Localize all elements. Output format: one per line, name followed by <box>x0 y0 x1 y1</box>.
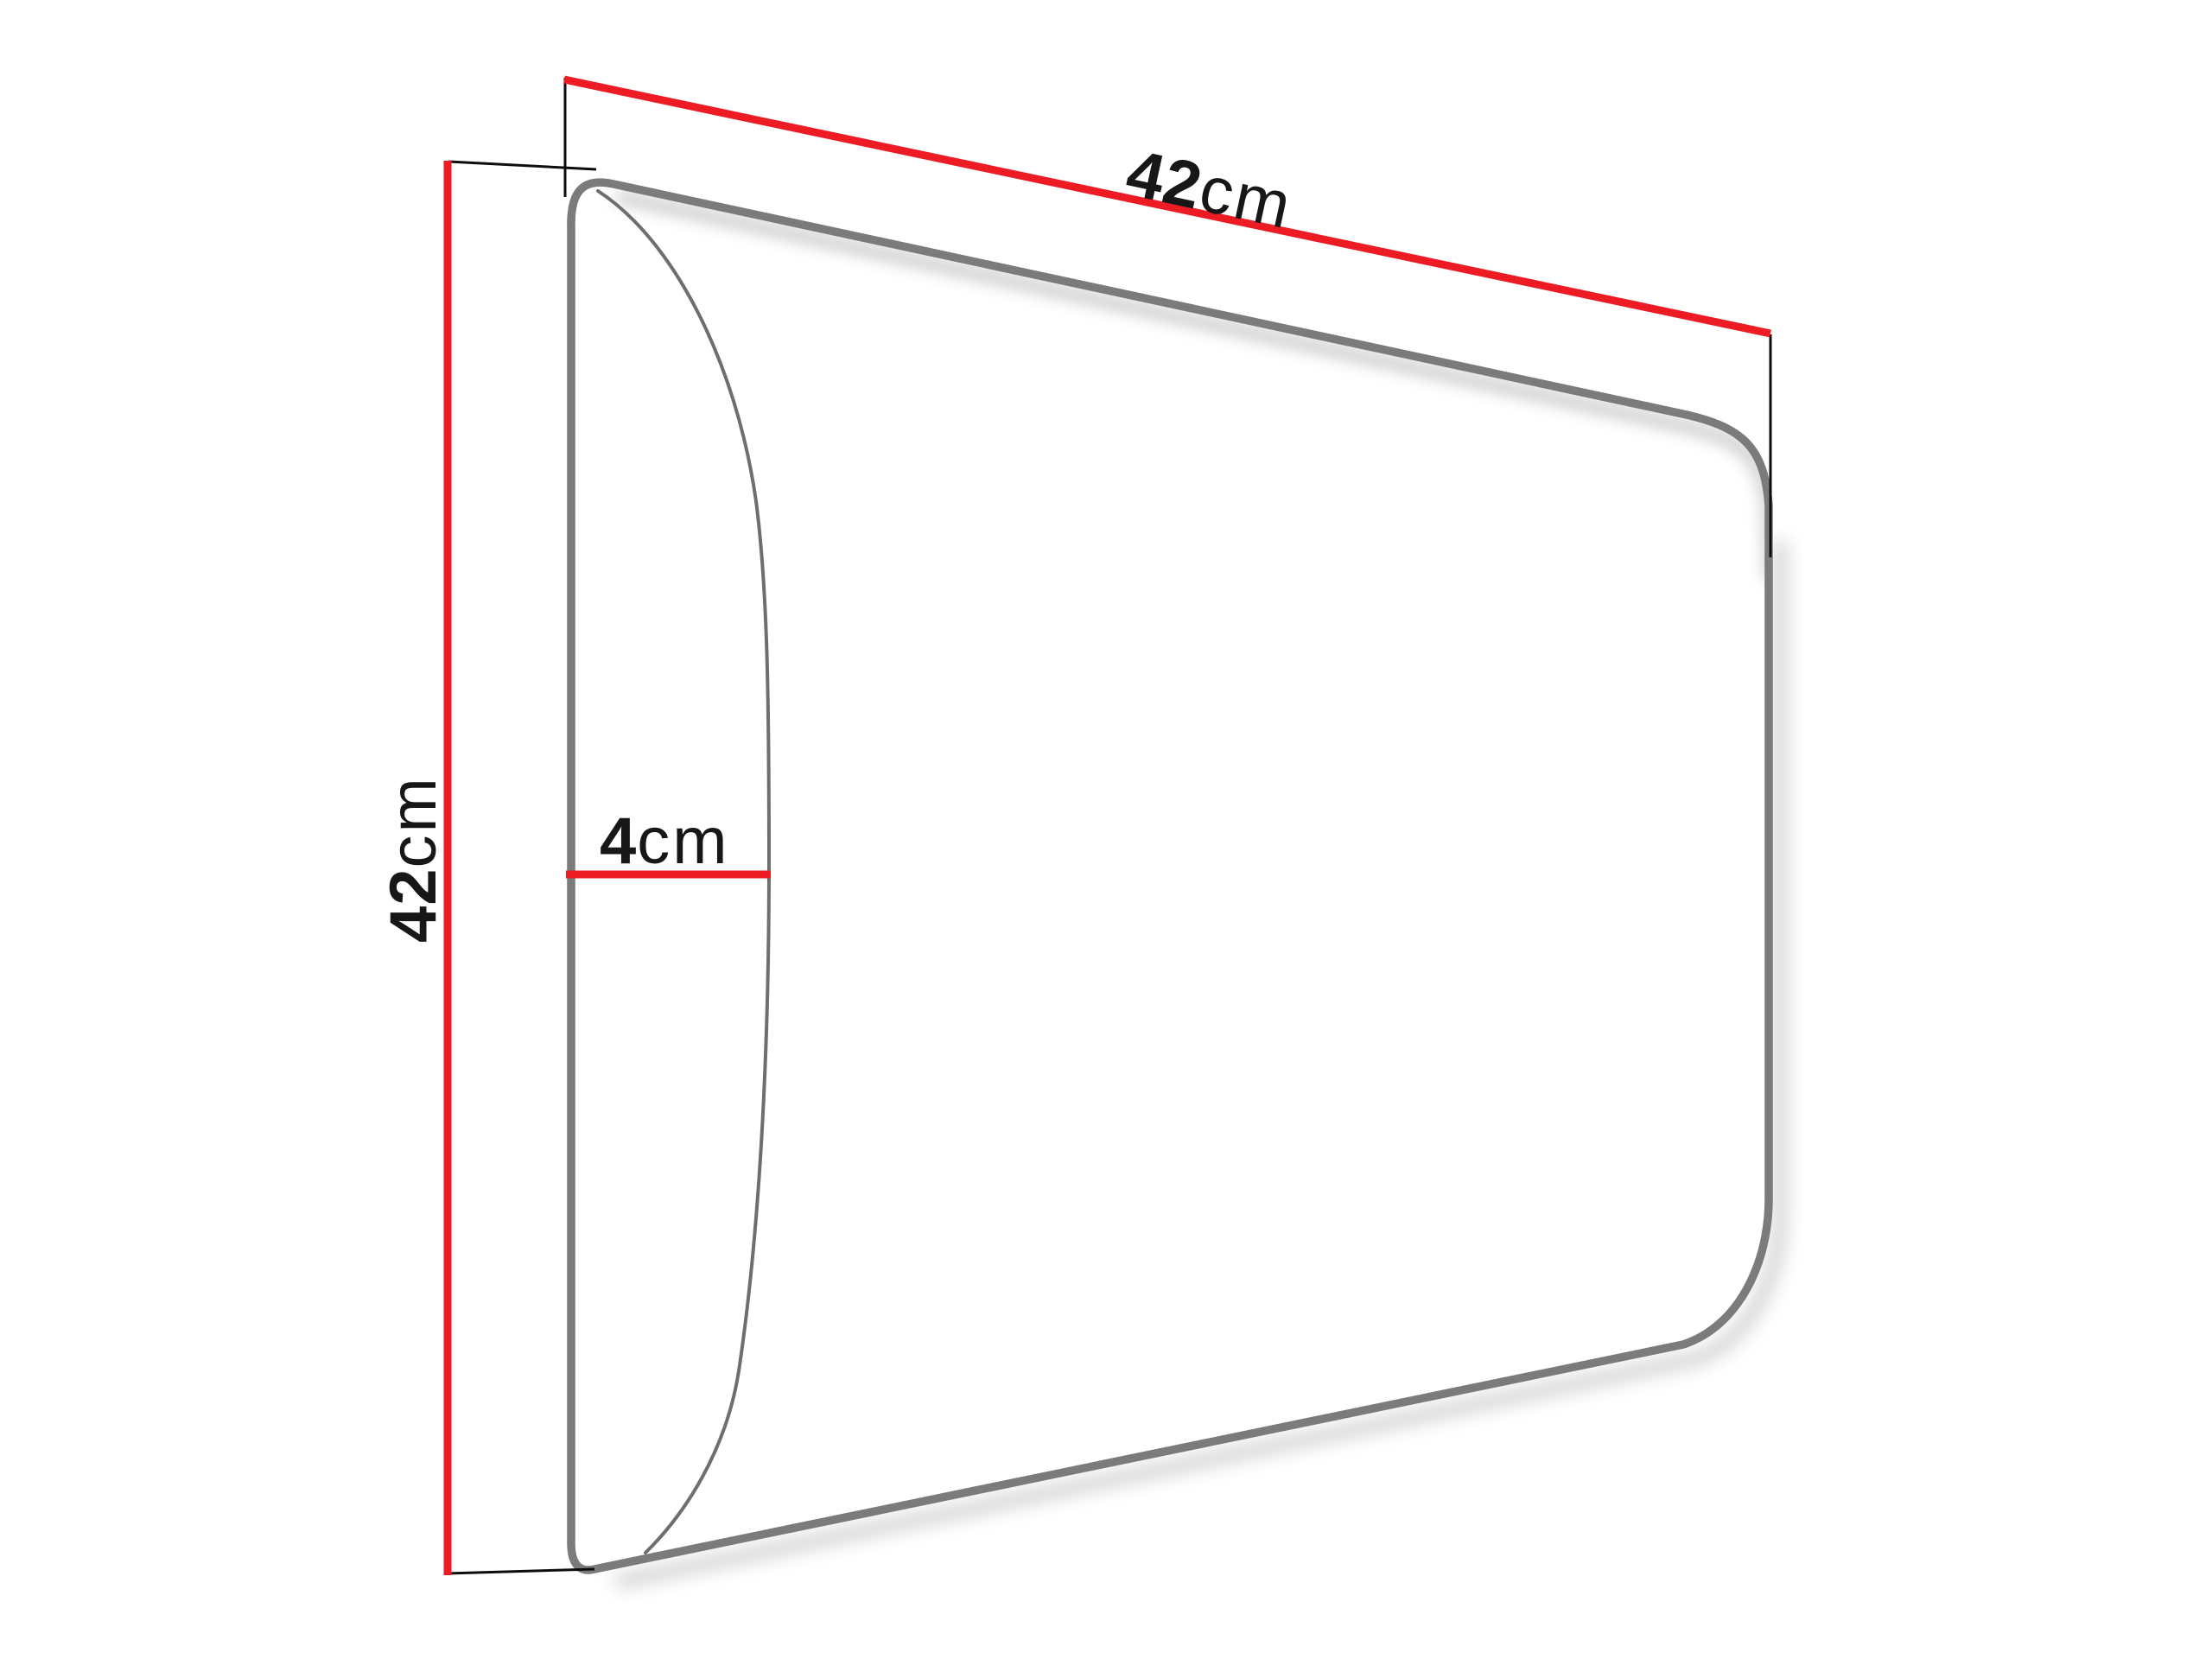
extension-line-top-left-horizontal <box>448 162 596 169</box>
depth-unit: cm <box>637 804 729 878</box>
width-unit: cm <box>1193 152 1300 244</box>
height-unit: cm <box>377 775 450 868</box>
extension-line-bottom-left-horizontal <box>447 1569 594 1573</box>
panel-dimension-diagram: 42cm 42cm 4cm <box>0 0 2212 1659</box>
depth-dimension-label: 4cm <box>600 804 730 878</box>
depth-value: 4 <box>600 804 637 878</box>
height-value: 42 <box>377 868 450 943</box>
height-dimension-label: 42cm <box>377 775 450 943</box>
diagram-canvas: 42cm 42cm 4cm <box>0 0 2212 1659</box>
width-dimension-label: 42cm <box>1120 137 1299 244</box>
